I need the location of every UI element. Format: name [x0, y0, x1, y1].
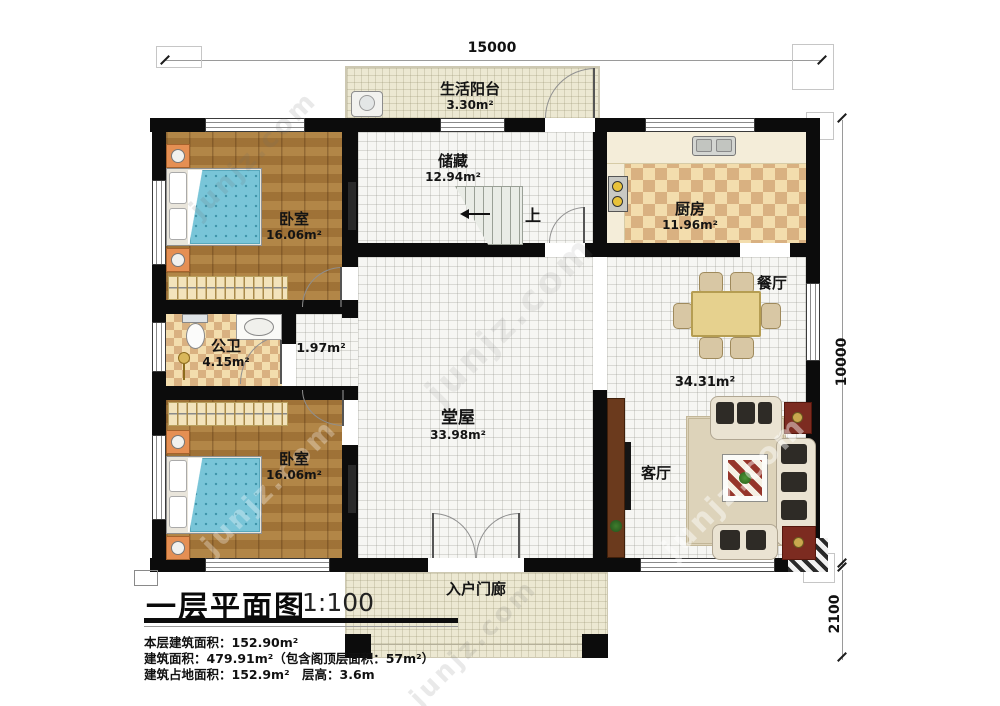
- info-line-3: 建筑占地面积：152.9m² 层高：3.6m: [144, 664, 375, 683]
- room-name: 堂屋: [410, 408, 506, 428]
- dining-table: [691, 291, 761, 337]
- wall: [806, 118, 820, 283]
- bedroom-bottom-label: 卧室 16.06m²: [252, 450, 336, 482]
- kitchen-sink-basin: [716, 139, 732, 152]
- wall: [152, 118, 166, 180]
- porch-step-line: [347, 644, 606, 645]
- bedroom-bottom-door-leaf: [342, 390, 344, 426]
- sofa-cushion: [720, 530, 740, 550]
- room-name: 厨房: [650, 200, 730, 218]
- axis-corner-box: [792, 44, 834, 90]
- wall: [152, 520, 166, 572]
- pillow: [169, 460, 187, 492]
- stove-burner: [612, 181, 623, 192]
- wall: [305, 118, 440, 132]
- room-name: 餐厅: [742, 274, 802, 292]
- porch-label: 入户门廊: [418, 580, 534, 598]
- stairs-up-text: 上: [520, 206, 546, 225]
- entrance-door-right-leaf: [518, 513, 520, 558]
- lamp: [171, 253, 185, 267]
- window: [640, 558, 775, 572]
- room-name: 卧室: [252, 210, 336, 228]
- side-table-ornament: [792, 412, 803, 423]
- balcony-label: 生活阳台 3.30m²: [410, 80, 530, 112]
- room-area: 1.97m²: [288, 340, 354, 355]
- stove-burner: [612, 196, 623, 207]
- room-name: 卧室: [252, 450, 336, 468]
- title-underline: [144, 618, 458, 623]
- coffee-table-plant: [739, 472, 751, 484]
- storage-label: 储藏 12.94m²: [408, 152, 498, 184]
- window: [152, 180, 166, 265]
- dimension-line-top: [165, 60, 822, 61]
- kitchen-label: 厨房 11.96m²: [650, 200, 730, 232]
- bathroom-label: 公卫 4.15m²: [190, 337, 262, 369]
- wall-mounted-unit: [348, 182, 356, 230]
- pillow: [169, 172, 187, 204]
- wardrobe: [168, 276, 288, 300]
- sofa-cushion: [737, 402, 755, 424]
- wall: [358, 243, 545, 257]
- shower-stem: [183, 364, 185, 380]
- plant: [610, 520, 622, 532]
- window: [152, 322, 166, 372]
- window: [152, 435, 166, 520]
- sink-basin: [244, 318, 274, 336]
- stairs-direction-arrow: [468, 213, 490, 215]
- pillow: [169, 208, 187, 240]
- lamp: [171, 541, 185, 555]
- balcony-door-leaf: [593, 68, 595, 118]
- dining-chair: [761, 303, 781, 329]
- room-area: 34.31m²: [660, 375, 750, 391]
- bed-sheet-fold: [188, 458, 210, 532]
- room-area: 11.96m²: [650, 218, 730, 232]
- title-underline-thin: [144, 626, 458, 627]
- stairs-arrow-head: [460, 209, 469, 219]
- living-label: 客厅: [626, 464, 686, 482]
- window: [806, 283, 820, 361]
- wall: [505, 118, 545, 132]
- side-table-ornament: [793, 537, 804, 548]
- room-area: 33.98m²: [410, 428, 506, 442]
- washing-machine-drum: [359, 95, 375, 111]
- stairs-up-label: 上: [520, 206, 546, 225]
- wardrobe: [168, 402, 288, 426]
- hall-label: 堂屋 33.98m²: [410, 408, 506, 443]
- dimension-bottom-right-label: 2100: [827, 584, 843, 644]
- sofa-cushion: [746, 530, 766, 550]
- wall: [593, 132, 607, 250]
- hallway-label: 1.97m²: [288, 340, 354, 355]
- lamp: [171, 149, 185, 163]
- room-area: 12.94m²: [408, 170, 498, 184]
- room-area: 16.06m²: [252, 468, 336, 482]
- wall: [593, 390, 607, 558]
- axis-corner-box: [156, 46, 202, 68]
- wall: [595, 118, 645, 132]
- lamp: [171, 435, 185, 449]
- room-name: 入户门廊: [418, 580, 534, 598]
- bedroom-top-label: 卧室 16.06m²: [252, 210, 336, 242]
- dining-chair: [699, 337, 723, 359]
- dining-living-area-label: 34.31m²: [660, 375, 750, 391]
- bathroom-door-leaf: [280, 336, 282, 384]
- wall: [330, 558, 428, 572]
- entrance-door-opening: [428, 558, 524, 572]
- dining-chair: [730, 337, 754, 359]
- bedroom-top-door-leaf: [340, 267, 342, 307]
- room-name: 客厅: [626, 464, 686, 482]
- bed-sheet-fold: [188, 170, 210, 244]
- window: [645, 118, 755, 132]
- room-name: 公卫: [190, 337, 262, 355]
- room-area: 16.06m²: [252, 228, 336, 242]
- sofa-cushion: [716, 402, 734, 424]
- room-name: 生活阳台: [410, 80, 530, 98]
- wall: [524, 558, 640, 572]
- plan-scale: 1:100: [302, 588, 374, 617]
- sofa-cushion: [781, 472, 807, 492]
- floor-plan: 15000 10000 2100: [0, 0, 1000, 706]
- kitchen-sink-basin: [696, 139, 712, 152]
- entrance-door-left-leaf: [432, 513, 434, 558]
- wall: [152, 372, 166, 435]
- dining-label: 餐厅: [742, 274, 802, 292]
- window: [440, 118, 505, 132]
- wall: [790, 243, 806, 257]
- dimension-top-label: 15000: [452, 40, 532, 56]
- door-opening: [545, 118, 595, 132]
- sofa-cushion: [758, 402, 772, 424]
- shower-head: [178, 352, 190, 364]
- porch-column: [582, 634, 608, 658]
- wall: [593, 243, 740, 257]
- dining-chair: [673, 303, 693, 329]
- storage-door-leaf: [583, 207, 585, 243]
- tv-cabinet: [607, 398, 625, 558]
- pillow: [169, 496, 187, 528]
- wall-mounted-unit: [348, 465, 356, 513]
- window: [205, 558, 330, 572]
- sofa-cushion: [781, 500, 807, 520]
- dimension-right-label: 10000: [834, 332, 850, 392]
- room-area: 4.15m²: [190, 355, 262, 369]
- room-area: 3.30m²: [410, 98, 530, 112]
- room-name: 储藏: [408, 152, 498, 170]
- window: [205, 118, 305, 132]
- toilet-tank: [182, 314, 208, 323]
- sofa-cushion: [781, 444, 807, 464]
